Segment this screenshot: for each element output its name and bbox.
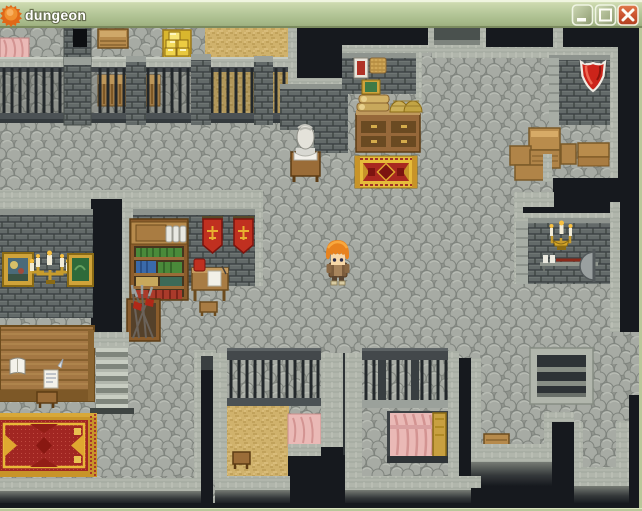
svg-text:dungeon: dungeon <box>25 7 86 23</box>
